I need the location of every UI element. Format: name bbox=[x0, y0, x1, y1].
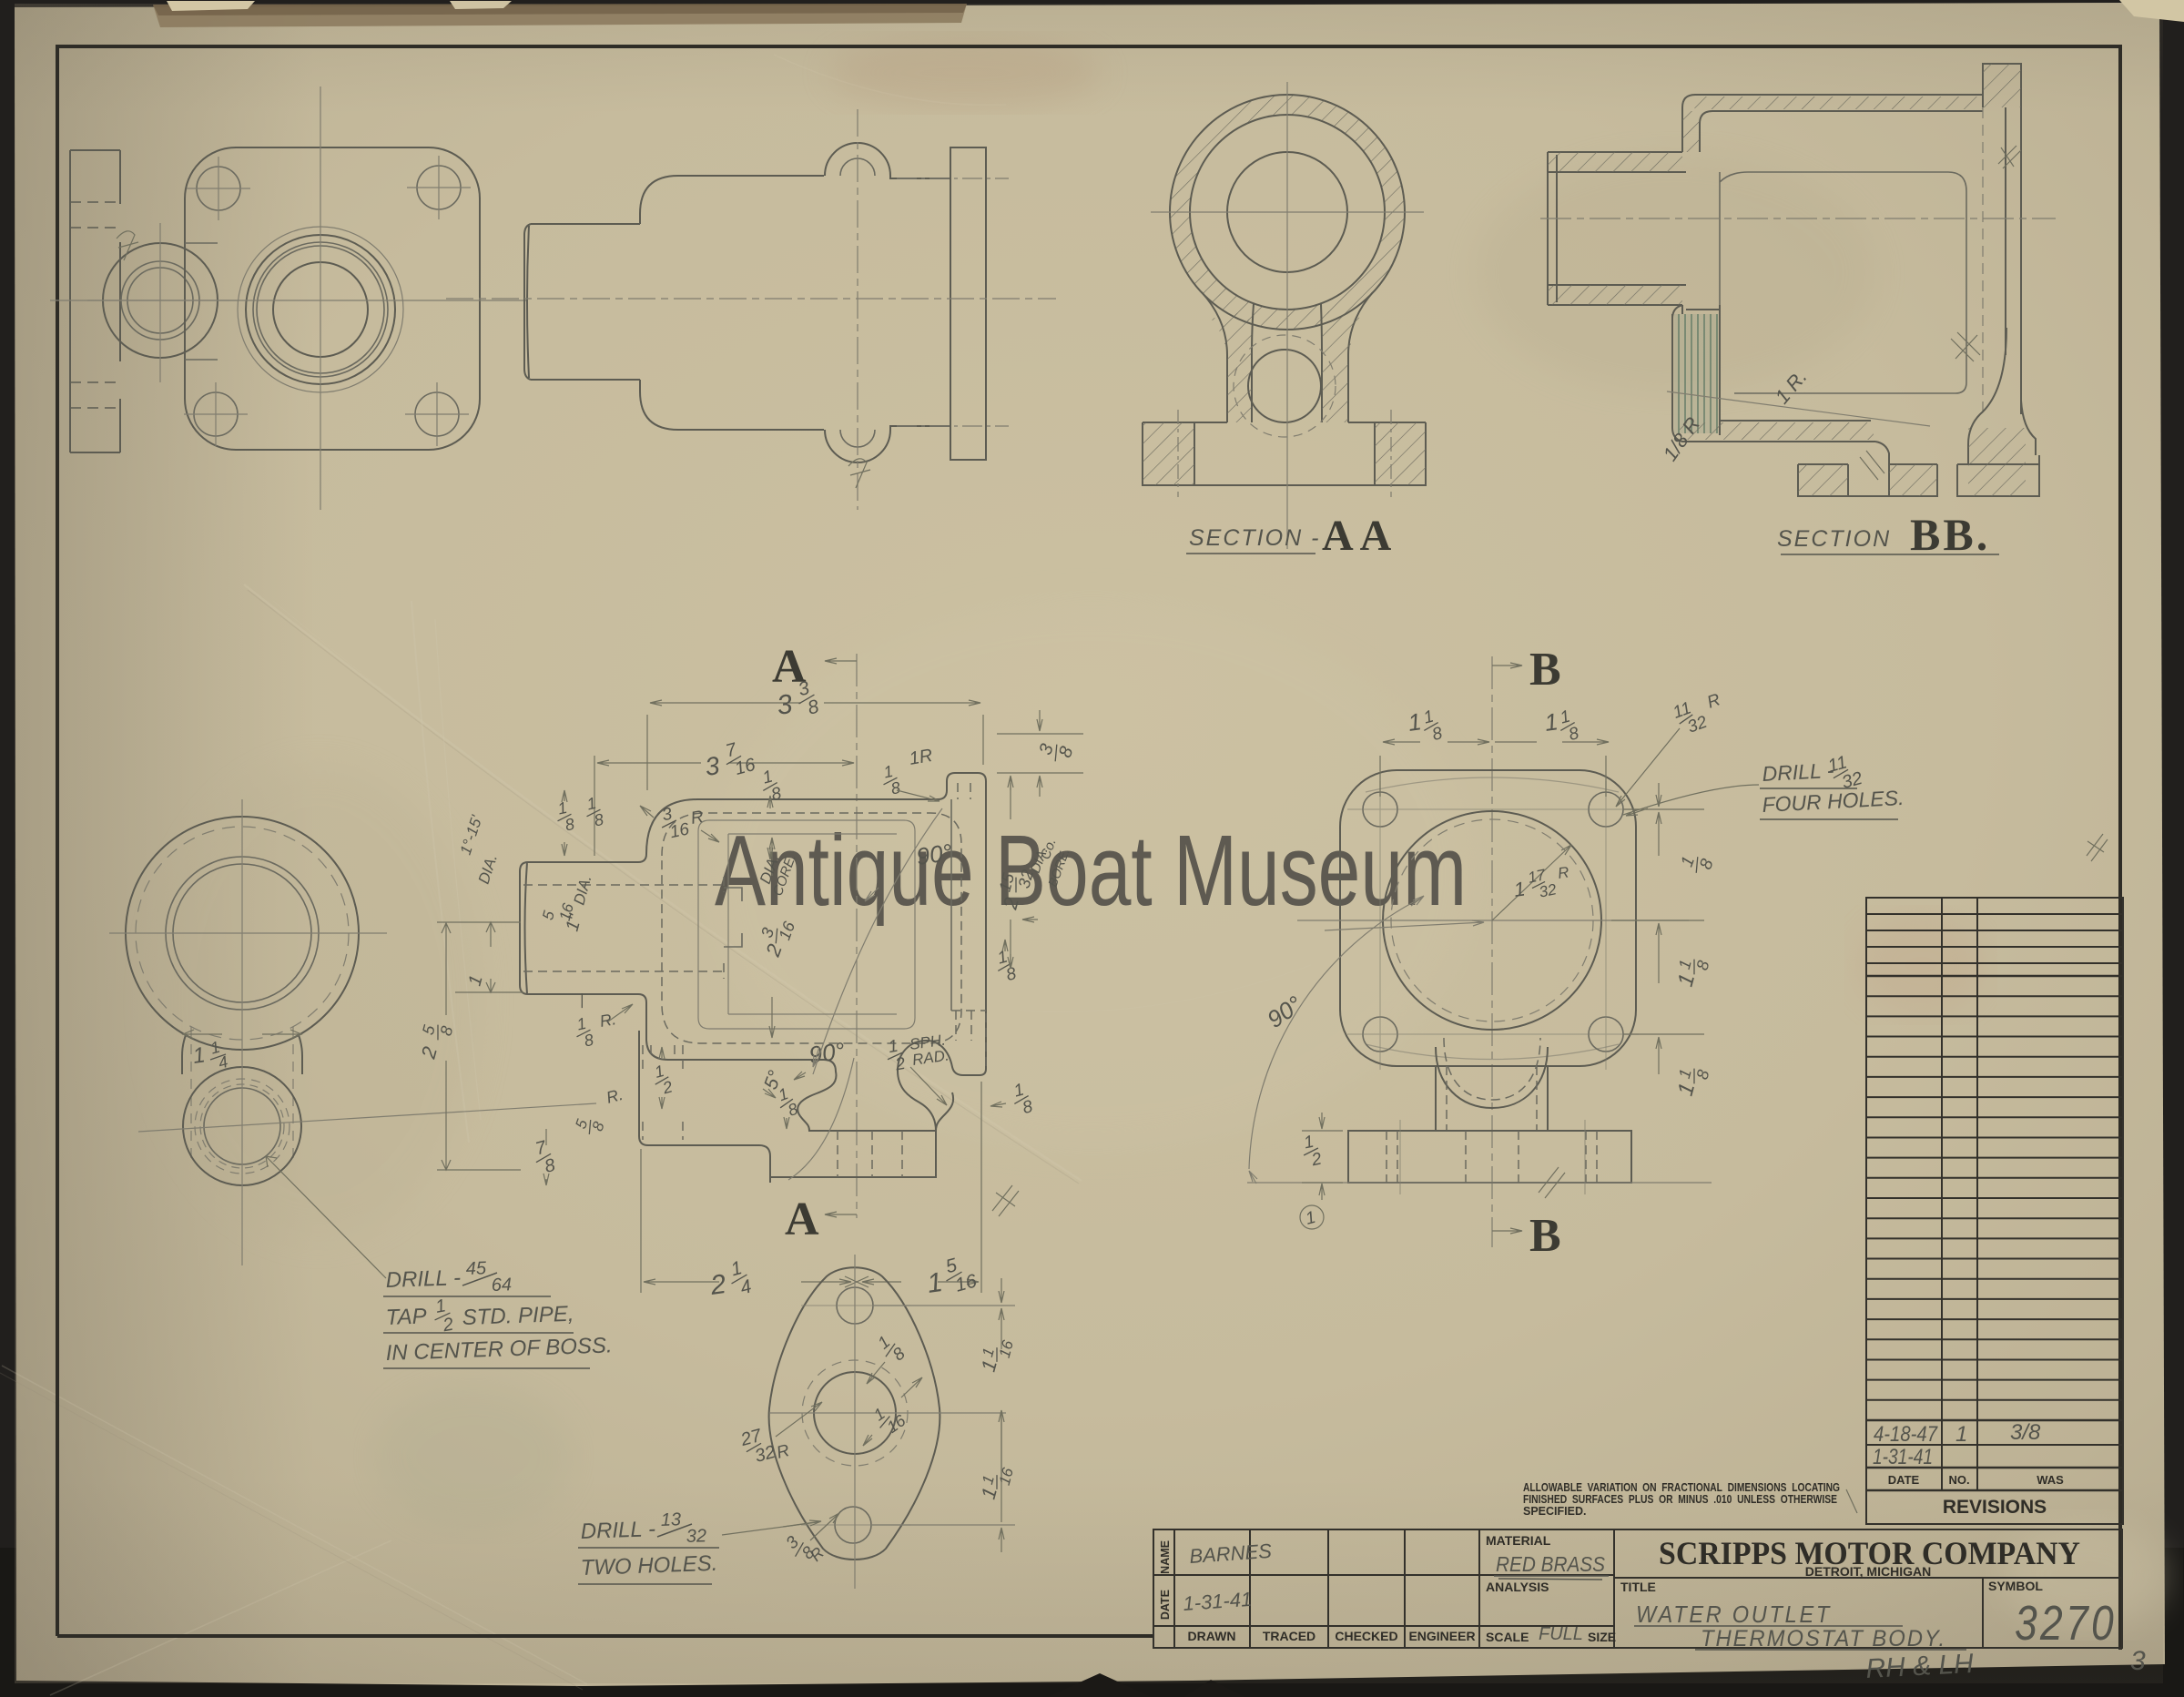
svg-text:SYMBOL: SYMBOL bbox=[1988, 1579, 2043, 1593]
svg-text:CHECKED: CHECKED bbox=[1335, 1629, 1397, 1643]
svg-text:NO.: NO. bbox=[1948, 1473, 1969, 1487]
svg-text:SIZE: SIZE bbox=[1588, 1630, 1616, 1644]
svg-text:TWO HOLES.: TWO HOLES. bbox=[580, 1551, 718, 1580]
svg-text:64: 64 bbox=[491, 1275, 512, 1296]
svg-text:1R: 1R bbox=[908, 746, 934, 769]
svg-text:ANALYSIS: ANALYSIS bbox=[1486, 1580, 1549, 1594]
svg-text:13: 13 bbox=[660, 1509, 681, 1530]
svg-text:DATE: DATE bbox=[1159, 1590, 1172, 1620]
svg-text:SECTION: SECTION bbox=[1777, 526, 1891, 552]
svg-text:B: B bbox=[1529, 644, 1561, 696]
svg-text:ENGINEER: ENGINEER bbox=[1408, 1629, 1475, 1643]
svg-text:WATER OUTLET: WATER OUTLET bbox=[1636, 1600, 1832, 1628]
svg-text:45: 45 bbox=[465, 1258, 487, 1279]
svg-text:RH & LH: RH & LH bbox=[1865, 1649, 1975, 1684]
svg-text:RED BRASS: RED BRASS bbox=[1496, 1552, 1606, 1576]
svg-text:TRACED: TRACED bbox=[1263, 1629, 1315, 1643]
svg-text:32: 32 bbox=[686, 1526, 706, 1547]
svg-text:DRILL -: DRILL - bbox=[1762, 758, 1834, 786]
svg-text:DRILL -: DRILL - bbox=[580, 1517, 655, 1544]
svg-text:FINISHED SURFACES PLUS OR: FINISHED SURFACES PLUS OR MINUS .010 UNL… bbox=[1523, 1493, 1837, 1506]
svg-text:STD. PIPE,: STD. PIPE, bbox=[462, 1302, 574, 1330]
svg-text:90°: 90° bbox=[915, 838, 954, 870]
svg-text:1-31-41: 1-31-41 bbox=[1873, 1445, 1933, 1469]
svg-text:BB.: BB. bbox=[1910, 509, 1990, 560]
svg-text:SCALE: SCALE bbox=[1486, 1630, 1529, 1644]
svg-text:DETROIT, MICHIGAN: DETROIT, MICHIGAN bbox=[1805, 1564, 1931, 1579]
svg-text:Antique Boat Museum: Antique Boat Museum bbox=[715, 815, 1467, 927]
svg-text:3: 3 bbox=[2130, 1646, 2146, 1676]
svg-text:THERMOSTAT BODY.: THERMOSTAT BODY. bbox=[1701, 1626, 1946, 1651]
svg-text:TAP: TAP bbox=[385, 1304, 427, 1330]
svg-text:1: 1 bbox=[1955, 1422, 1967, 1447]
svg-text:SPECIFIED.: SPECIFIED. bbox=[1523, 1505, 1586, 1518]
svg-text:R: R bbox=[1557, 863, 1570, 882]
svg-text:1-31-41: 1-31-41 bbox=[1183, 1588, 1253, 1615]
svg-text:DATE: DATE bbox=[1888, 1473, 1920, 1487]
svg-text:WAS: WAS bbox=[2037, 1473, 2064, 1487]
svg-text:A: A bbox=[785, 1194, 819, 1245]
svg-text:AA: AA bbox=[1322, 512, 1397, 560]
svg-text:3/8: 3/8 bbox=[2010, 1420, 2041, 1445]
svg-text:4-18-47: 4-18-47 bbox=[1874, 1422, 1938, 1447]
svg-text:MATERIAL: MATERIAL bbox=[1486, 1533, 1551, 1548]
svg-text:ALLOWABLE VARIATION ON FRAC: ALLOWABLE VARIATION ON FRACTIONAL DIMENS… bbox=[1523, 1481, 1840, 1494]
svg-text:R.: R. bbox=[598, 1010, 617, 1031]
svg-text:FULL: FULL bbox=[1539, 1624, 1583, 1644]
svg-text:B: B bbox=[1529, 1210, 1561, 1262]
svg-text:NAME: NAME bbox=[1159, 1540, 1172, 1574]
svg-text:TITLE: TITLE bbox=[1620, 1580, 1656, 1594]
svg-text:REVISIONS: REVISIONS bbox=[1943, 1497, 2047, 1518]
svg-text:DRAWN: DRAWN bbox=[1188, 1629, 1236, 1643]
svg-text:3270: 3270 bbox=[2015, 1596, 2117, 1651]
svg-text:SECTION -: SECTION - bbox=[1189, 525, 1320, 551]
svg-text:DRILL -: DRILL - bbox=[385, 1265, 461, 1293]
